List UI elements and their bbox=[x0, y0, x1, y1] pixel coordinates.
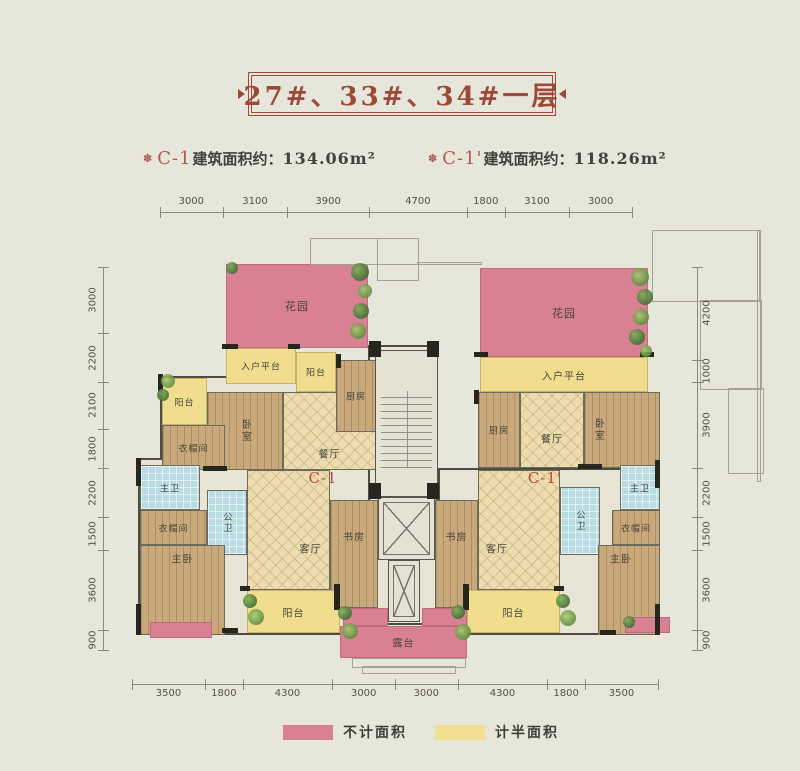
plant-icon bbox=[351, 263, 369, 281]
wall-segment bbox=[474, 390, 479, 404]
plant-icon bbox=[161, 374, 175, 388]
dim-bottom-value: 4300 bbox=[275, 688, 300, 699]
plant-icon bbox=[226, 262, 238, 274]
plant-icon bbox=[637, 289, 653, 305]
unit-code-right-label: C-1' bbox=[528, 469, 562, 487]
living-right-label: 客厅 bbox=[486, 541, 508, 556]
wall-segment bbox=[578, 464, 602, 469]
dim-top-value: 1800 bbox=[473, 196, 498, 207]
plant-icon bbox=[556, 594, 570, 608]
plant-icon bbox=[629, 329, 645, 345]
bath-master-right-label: 主卫 bbox=[630, 481, 650, 494]
plant-icon bbox=[342, 623, 358, 639]
dining-left-label: 餐厅 bbox=[319, 446, 341, 461]
dim-tick bbox=[547, 679, 548, 690]
bath-public-right: 公卫 bbox=[560, 487, 600, 555]
plant-icon bbox=[350, 323, 366, 339]
legend-swatch-half-counted bbox=[435, 725, 485, 740]
terrace-label: 露台 bbox=[393, 635, 415, 650]
plant-icon bbox=[640, 345, 652, 357]
plant-icon bbox=[353, 303, 369, 319]
dim-bottom-value: 3500 bbox=[609, 688, 634, 699]
dim-bottom-value: 3000 bbox=[414, 688, 439, 699]
kitchen-left-label: 厨房 bbox=[346, 390, 366, 403]
dim-tick bbox=[287, 207, 288, 218]
balcony-left-top-label: 阳台 bbox=[306, 366, 326, 379]
dim-tick bbox=[98, 468, 109, 469]
dim-tick bbox=[658, 679, 659, 690]
cloakroom-left-top: 衣帽间 bbox=[162, 425, 225, 470]
dim-tick bbox=[692, 650, 703, 651]
master-bedroom-left-label: 主卧 bbox=[172, 551, 194, 566]
kitchen-right-label: 厨房 bbox=[489, 424, 509, 437]
wall-segment bbox=[554, 586, 564, 591]
dim-right-value: 900 bbox=[702, 630, 713, 649]
legend-label-not-counted: 不计面积 bbox=[343, 722, 407, 742]
wall-segment bbox=[369, 341, 381, 357]
plant-icon bbox=[623, 616, 635, 628]
study-right-label: 书房 bbox=[446, 529, 468, 544]
dim-tick bbox=[458, 679, 459, 690]
wall-segment bbox=[136, 604, 141, 635]
balcony-left-top: 阳台 bbox=[296, 352, 336, 392]
wall-segment bbox=[369, 483, 381, 499]
plant-icon bbox=[631, 268, 649, 286]
plant-icon bbox=[157, 389, 169, 401]
bath-public-left-label: 公卫 bbox=[221, 512, 234, 534]
garden-right-label: 花园 bbox=[552, 305, 576, 321]
dim-tick bbox=[332, 679, 333, 690]
master-bedroom-right-label: 主卧 bbox=[610, 551, 632, 566]
dim-tick bbox=[98, 382, 109, 383]
bath-master-right: 主卫 bbox=[620, 465, 660, 510]
unit-code-left-label: C-1 bbox=[308, 469, 337, 487]
wall-segment bbox=[427, 483, 439, 499]
garden-left-label: 花园 bbox=[285, 298, 309, 314]
dim-left-value: 2200 bbox=[88, 480, 99, 505]
entry-platform-left: 入户平台 bbox=[226, 348, 296, 384]
balcony-left-bottom-label: 阳台 bbox=[283, 604, 305, 619]
living-left-label: 客厅 bbox=[300, 541, 322, 556]
dim-top-value: 3000 bbox=[588, 196, 613, 207]
legend-swatch-not-counted bbox=[283, 725, 333, 740]
wall-segment bbox=[334, 584, 340, 610]
cloakroom-left-bottom: 衣帽间 bbox=[140, 510, 207, 545]
dim-left-value: 3000 bbox=[88, 287, 99, 312]
plant-icon bbox=[358, 284, 372, 298]
dim-bottom-value: 4300 bbox=[490, 688, 515, 699]
wall-segment bbox=[655, 460, 660, 488]
dim-top-value: 3100 bbox=[524, 196, 549, 207]
wall-segment bbox=[474, 352, 488, 357]
bedroom-right-label: 卧室 bbox=[591, 418, 606, 442]
kitchen-right: 厨房 bbox=[478, 392, 520, 468]
floorplan-canvas: 花园花园入户平台入户平台阳台阳台餐厅厨房卧室衣帽间主卫公卫衣帽间主卧客厅书房阳台… bbox=[0, 0, 800, 771]
dim-left-value: 2200 bbox=[88, 345, 99, 370]
dim-tick bbox=[505, 207, 506, 218]
wall-segment bbox=[136, 458, 141, 486]
plant-icon bbox=[243, 594, 257, 608]
dim-right-value: 1500 bbox=[702, 521, 713, 546]
elevator bbox=[378, 497, 435, 560]
dim-top-value: 4700 bbox=[405, 196, 430, 207]
dim-top-value: 3900 bbox=[315, 196, 340, 207]
plant-icon bbox=[338, 606, 352, 620]
elevator-cross-icon bbox=[383, 502, 430, 555]
context-outline bbox=[362, 666, 456, 674]
wall-segment bbox=[203, 466, 227, 471]
wall-segment bbox=[222, 628, 238, 633]
unit-code-right: C-1' bbox=[505, 467, 585, 489]
dining-right: 餐厅 bbox=[520, 392, 584, 468]
plant-icon bbox=[560, 610, 576, 626]
wall-segment bbox=[336, 354, 341, 368]
dim-tick bbox=[98, 333, 109, 334]
dim-tick bbox=[132, 679, 133, 690]
dim-line bbox=[103, 267, 104, 650]
dim-tick bbox=[692, 550, 703, 551]
entry-platform-right-label: 入户平台 bbox=[542, 367, 586, 382]
dim-left-value: 1800 bbox=[88, 436, 99, 461]
balcony-right-bottom-label: 阳台 bbox=[503, 604, 525, 619]
cloakroom-right: 衣帽间 bbox=[612, 510, 660, 545]
kitchen-left: 厨房 bbox=[336, 360, 376, 432]
dim-bottom-value: 1800 bbox=[211, 688, 236, 699]
terrace: 露台 bbox=[340, 626, 467, 658]
dim-left-value: 2100 bbox=[88, 393, 99, 418]
garden-right: 花园 bbox=[480, 268, 648, 357]
bath-master-left: 主卫 bbox=[140, 465, 200, 510]
dim-bottom-value: 3000 bbox=[351, 688, 376, 699]
legend: 不计面积 计半面积 bbox=[283, 722, 559, 742]
wall-segment bbox=[222, 344, 238, 349]
dim-tick bbox=[98, 517, 109, 518]
dim-right-value: 2200 bbox=[702, 480, 713, 505]
dim-tick bbox=[98, 429, 109, 430]
dim-tick bbox=[692, 267, 703, 268]
entry-platform-right: 入户平台 bbox=[480, 357, 648, 392]
bedroom-left-label: 卧室 bbox=[238, 419, 253, 443]
dim-bottom-value: 1800 bbox=[553, 688, 578, 699]
floorplan-page: 27#、33#、34#一层 ✽ C-1 建筑面积约： 134.06m² ✽ C-… bbox=[0, 0, 800, 771]
context-outline bbox=[417, 262, 482, 265]
cloakroom-right-label: 衣帽间 bbox=[621, 521, 651, 534]
dim-tick bbox=[98, 650, 109, 651]
plant-icon bbox=[455, 624, 471, 640]
garden-left: 花园 bbox=[226, 264, 368, 348]
plant-icon bbox=[633, 309, 649, 325]
cloakroom-left-bottom-label: 衣帽间 bbox=[158, 521, 188, 534]
dim-tick bbox=[243, 679, 244, 690]
dim-tick bbox=[692, 468, 703, 469]
dim-tick bbox=[205, 679, 206, 690]
elevator-shaft bbox=[388, 560, 420, 622]
entry-platform-left-label: 入户平台 bbox=[241, 360, 281, 373]
bath-master-left-label: 主卫 bbox=[160, 481, 180, 494]
legend-label-half-counted: 计半面积 bbox=[495, 722, 559, 742]
dim-right-value: 4200 bbox=[702, 301, 713, 326]
dim-tick bbox=[98, 550, 109, 551]
bath-public-right-label: 公卫 bbox=[574, 510, 587, 532]
dim-tick bbox=[369, 207, 370, 218]
dim-line bbox=[160, 212, 632, 213]
dim-left-value: 1500 bbox=[88, 521, 99, 546]
wall-segment bbox=[427, 341, 439, 357]
dim-bottom-value: 3500 bbox=[156, 688, 181, 699]
dim-right-value: 1000 bbox=[702, 358, 713, 383]
dim-tick bbox=[98, 630, 109, 631]
context-outline bbox=[652, 230, 760, 302]
dim-left-value: 3600 bbox=[88, 577, 99, 602]
bedroom-right: 卧室 bbox=[584, 392, 660, 468]
cloakroom-left-top-label: 衣帽间 bbox=[178, 441, 208, 454]
dim-tick bbox=[569, 207, 570, 218]
dim-tick bbox=[395, 679, 396, 690]
wall-segment bbox=[463, 584, 469, 610]
elevator-cross-icon bbox=[393, 565, 415, 617]
unit-code-left: C-1 bbox=[283, 467, 363, 489]
dim-tick bbox=[632, 207, 633, 218]
dim-top-value: 3000 bbox=[179, 196, 204, 207]
plant-icon bbox=[451, 605, 465, 619]
wall-segment bbox=[288, 344, 300, 349]
dim-tick bbox=[98, 267, 109, 268]
stairwell bbox=[375, 350, 438, 497]
study-left-label: 书房 bbox=[343, 529, 365, 544]
dim-tick bbox=[692, 517, 703, 518]
balcony-left-edge-label: 阳台 bbox=[174, 395, 194, 408]
dim-tick bbox=[160, 207, 161, 218]
dim-right-value: 3600 bbox=[702, 577, 713, 602]
wall-segment bbox=[655, 604, 660, 635]
dim-tick bbox=[223, 207, 224, 218]
dim-top-value: 3100 bbox=[242, 196, 267, 207]
dim-tick bbox=[467, 207, 468, 218]
balcony-right-bottom: 阳台 bbox=[467, 590, 560, 633]
stair-steps bbox=[381, 391, 432, 468]
wall-segment bbox=[240, 586, 250, 591]
dining-right-label: 餐厅 bbox=[541, 431, 563, 446]
dim-left-value: 900 bbox=[88, 630, 99, 649]
dim-tick bbox=[585, 679, 586, 690]
wall-segment bbox=[600, 630, 616, 635]
context-outline bbox=[757, 230, 761, 482]
flowerbed-left bbox=[150, 622, 212, 638]
context-outline bbox=[377, 238, 419, 281]
dim-right-value: 3900 bbox=[702, 413, 713, 438]
dim-line bbox=[697, 267, 698, 650]
plant-icon bbox=[248, 609, 264, 625]
